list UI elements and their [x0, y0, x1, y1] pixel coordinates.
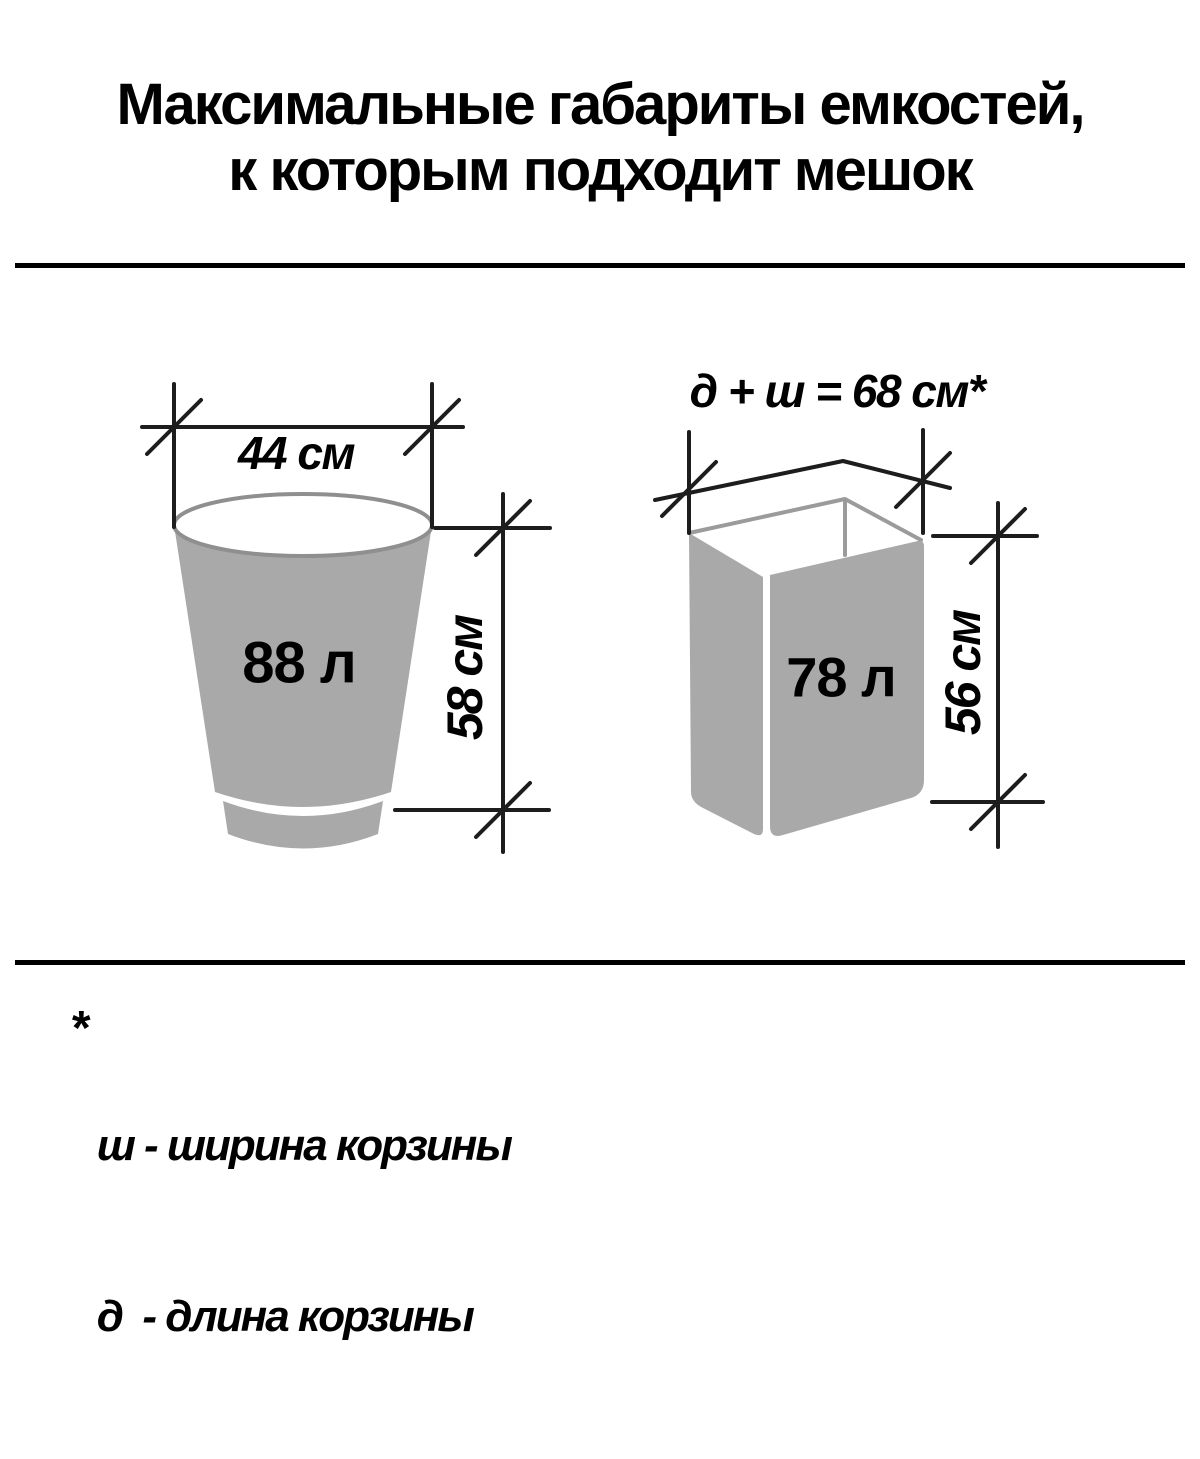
basket-height-label: 56 см	[934, 611, 992, 735]
footnote-line-length: д - длина корзины	[97, 1288, 511, 1345]
footnote-line-width: ш - ширина корзины	[97, 1117, 511, 1174]
basket-left-wall-shape	[689, 533, 763, 835]
bucket-base-shape	[223, 801, 383, 849]
footnote-asterisk: *	[70, 1003, 89, 1055]
infographic: Максимальные габариты емкостей, к которы…	[0, 0, 1200, 1200]
bucket-rim-ellipse	[174, 494, 432, 556]
basket-perimeter-dimension	[655, 430, 950, 533]
basket-far-rim-line	[689, 499, 921, 540]
bucket-width-label: 44 см	[238, 426, 354, 480]
basket-volume-label: 78 л	[786, 645, 895, 710]
bucket-volume-label: 88 л	[242, 630, 355, 697]
footnote-legend: * ш - ширина корзины д - длина корзины	[70, 1003, 511, 1459]
basket-dimensions-formula-label: д + ш = 68 см*	[690, 364, 985, 418]
bucket-height-label: 58 см	[436, 616, 494, 740]
footnote-lines: ш - ширина корзины д - длина корзины	[97, 1003, 511, 1459]
